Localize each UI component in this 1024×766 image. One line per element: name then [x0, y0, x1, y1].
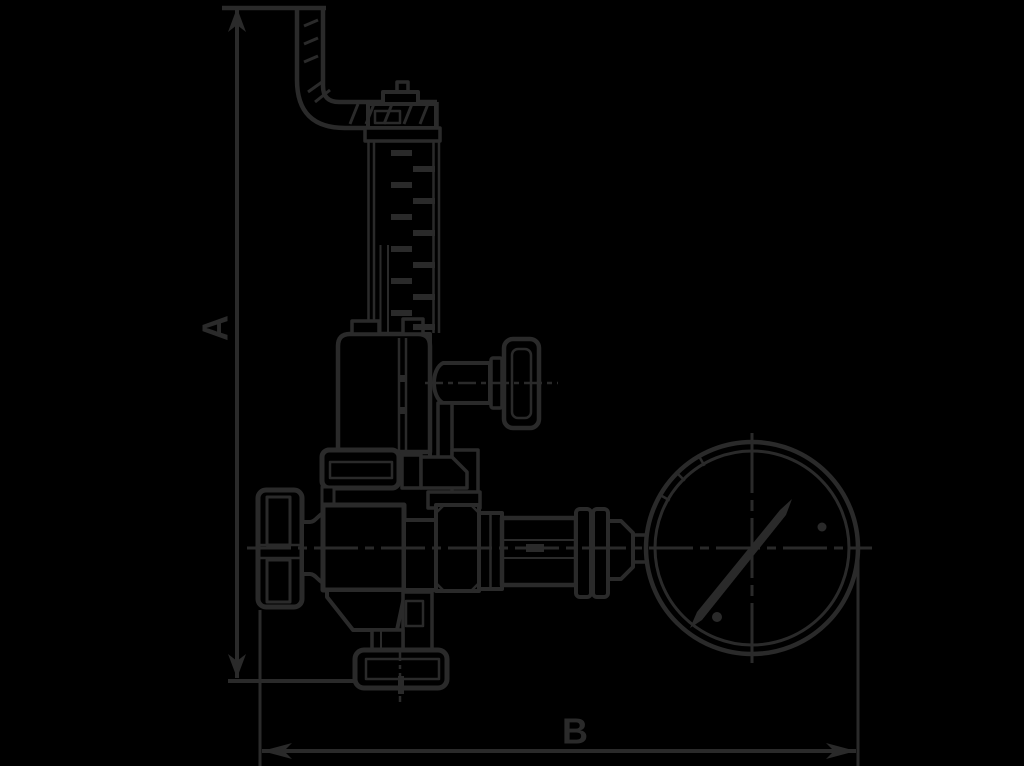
- dimension-label-B: B: [562, 711, 588, 752]
- pipe-inner-wall: [323, 8, 437, 102]
- technical-drawing-relief-valve-with-gauge: A B: [0, 0, 1024, 766]
- tube-top-flange: [365, 128, 440, 141]
- cylinder-center-mark: [526, 544, 544, 552]
- reducer: [608, 521, 633, 579]
- spring-coils: [391, 150, 435, 330]
- housing-box: [338, 334, 430, 452]
- bonnet-housing: [338, 319, 430, 470]
- flange-bottom-key: [398, 676, 404, 694]
- body-taper: [327, 590, 404, 630]
- housing-tab: [352, 321, 379, 334]
- housing-tick: [398, 375, 407, 382]
- neck: [372, 630, 403, 650]
- top-cap-assembly: [365, 82, 440, 141]
- valve-outline-shapes: [222, 8, 858, 766]
- housing-tick: [398, 407, 407, 414]
- dimension-label-A: A: [195, 315, 236, 341]
- flange-plate: [593, 509, 608, 597]
- union-outer: [322, 450, 399, 488]
- body-step: [322, 487, 334, 505]
- union-right-block: [402, 455, 421, 488]
- bottom-inlet: [327, 590, 447, 688]
- gauge-screw-dot: [712, 612, 722, 622]
- gauge-screw-dot: [818, 523, 827, 532]
- gauge-coupling-train: [479, 509, 660, 597]
- flange-plate: [576, 509, 591, 597]
- body-right-plate: [404, 520, 436, 590]
